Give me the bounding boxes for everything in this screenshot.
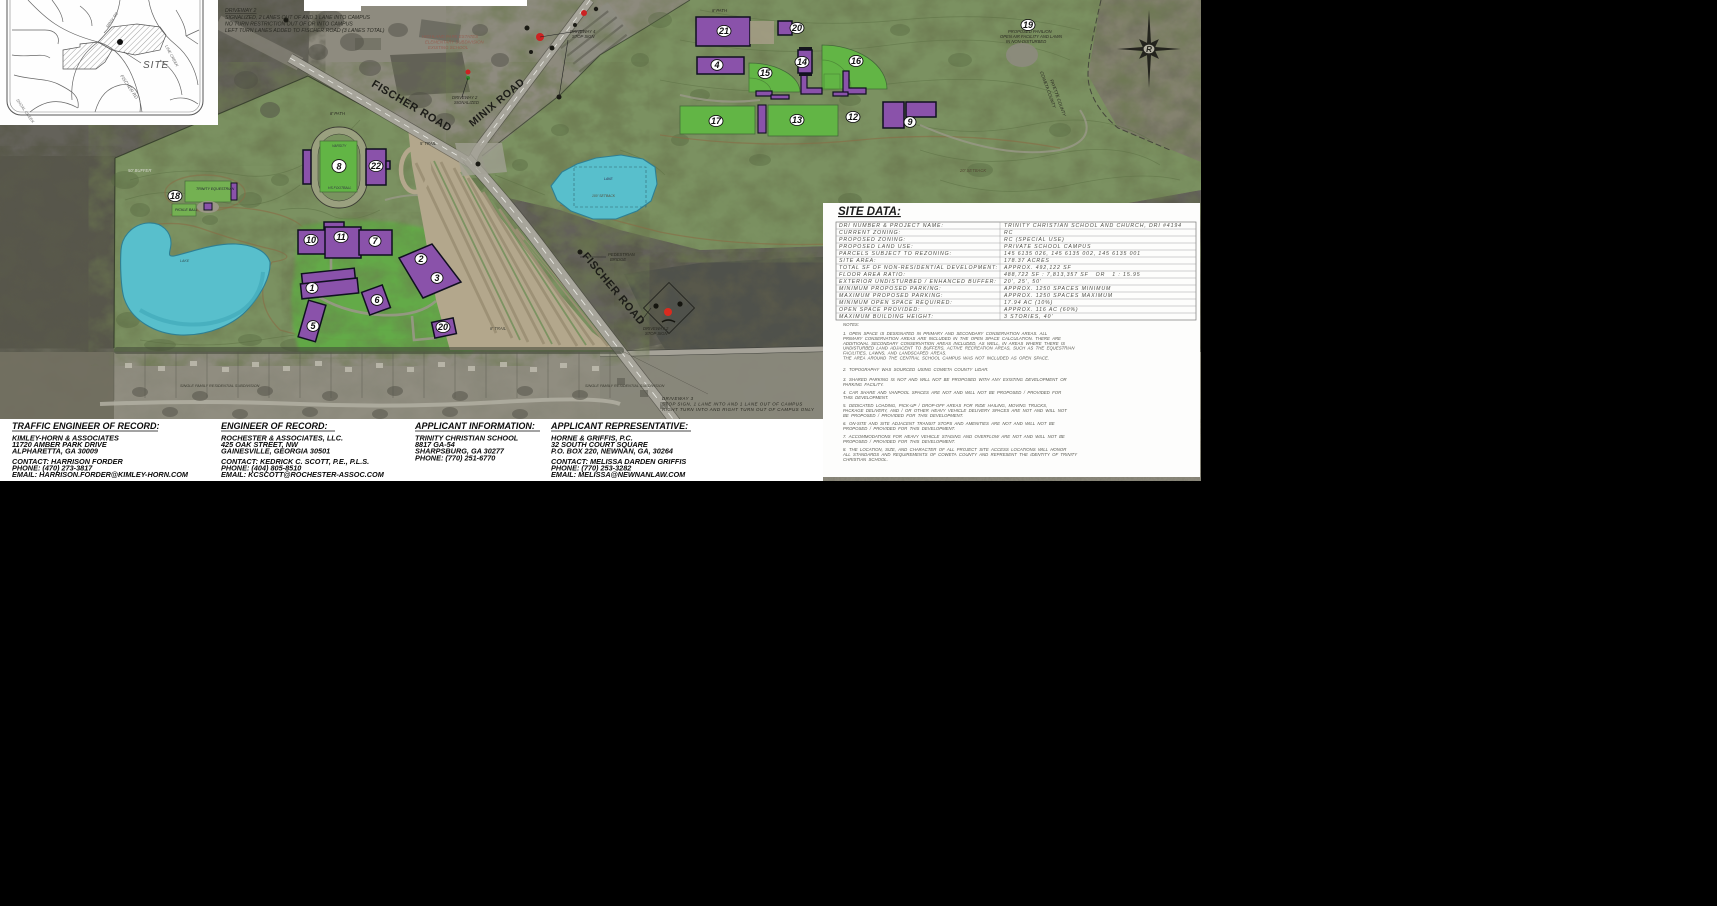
svg-text:APPROX. 116 AC (60%): APPROX. 116 AC (60%) [1003,307,1079,313]
svg-text:20' SETBACK: 20' SETBACK [959,168,986,173]
svg-text:APPROX. 1250 SPACES MAXIMUM: APPROX. 1250 SPACES MAXIMUM [1003,293,1113,299]
svg-text:8: 8 [336,162,341,172]
svg-text:15: 15 [760,68,771,78]
svg-text:3 STORIES, 40': 3 STORIES, 40' [1004,314,1053,320]
svg-text:P.O. BOX 220, NEWNAN, GA, 3026: P.O. BOX 220, NEWNAN, GA, 30264 [551,447,673,456]
svg-text:8' PATH: 8' PATH [712,8,728,13]
svg-text:PROPOSED LAND USE:: PROPOSED LAND USE: [839,244,913,250]
svg-text:TOTAL SF OF NON-RESIDENTIAL DE: TOTAL SF OF NON-RESIDENTIAL DEVELOPMENT: [839,265,998,271]
svg-text:EXISTING SCHOOL: EXISTING SCHOOL [428,45,469,50]
svg-text:MAXIMUM PROPOSED PARKING:: MAXIMUM PROPOSED PARKING: [839,293,943,299]
svg-text:18: 18 [170,191,180,201]
svg-text:SIGNALIZED, 2 LANES OUT OF AND: SIGNALIZED, 2 LANES OUT OF AND 1 LANE IN… [225,15,370,21]
svg-text:100' SETBACK: 100' SETBACK [592,194,616,198]
svg-text:20: 20 [437,322,448,332]
svg-text:PRIVATE SCHOOL CAMPUS: PRIVATE SCHOOL CAMPUS [1004,244,1091,250]
svg-text:SITE DATA:: SITE DATA: [838,206,901,218]
svg-text:LEFT TURN LANES ADDED TO FISCH: LEFT TURN LANES ADDED TO FISCHER ROAD (3… [225,28,385,34]
svg-text:11: 11 [336,232,345,242]
svg-text:DRIVEWAY 3: DRIVEWAY 3 [662,396,694,401]
svg-text:STOP SIGN: STOP SIGN [572,34,596,39]
svg-text:OPEN SPACE PROVIDED:: OPEN SPACE PROVIDED: [839,307,920,313]
svg-text:RIGHT TURN INTO AND RIGHT TURN: RIGHT TURN INTO AND RIGHT TURN OUT OF CA… [662,407,815,412]
svg-text:1: 1 [309,283,314,293]
svg-text:13: 13 [792,115,802,125]
svg-text:ELEMENTARY SUBDIVISION: ELEMENTARY SUBDIVISION [425,40,485,45]
svg-text:PROPOSED / PROVIDED FOR TH: PROPOSED / PROVIDED FOR THIS DEVELOPMENT… [843,426,955,431]
svg-text:TRAFFIC ENGINEER OF RECORD:: TRAFFIC ENGINEER OF RECORD: [12,421,160,431]
svg-text:5' TRAIL: 5' TRAIL [420,141,437,146]
svg-text:3: 3 [434,273,439,283]
svg-text:PHONE: (770) 251-6770: PHONE: (770) 251-6770 [415,453,495,462]
svg-text:TRINITY EQUESTRIAN: TRINITY EQUESTRIAN [196,187,235,191]
svg-text:DRI NUMBER & PROJECT NAME:: DRI NUMBER & PROJECT NAME: [839,223,944,229]
svg-text:TRINITY CHRISTIAN SCHOOL AND C: TRINITY CHRISTIAN SCHOOL AND CHURCH, DRI… [1004,223,1182,229]
svg-text:IN NON-DISTURBED: IN NON-DISTURBED [1006,39,1046,44]
svg-text:MINIMUM PROPOSED PARKING:: MINIMUM PROPOSED PARKING: [839,286,942,292]
svg-text:HIGHLAND PARK ESTATES: HIGHLAND PARK ESTATES [422,34,478,39]
svg-text:PARKING FACILITY.: PARKING FACILITY. [843,382,884,387]
svg-text:17.94 AC (10%): 17.94 AC (10%) [1004,300,1053,306]
svg-text:PICKLE BALL: PICKLE BALL [175,208,198,212]
svg-text:NOTES:: NOTES: [843,322,860,327]
svg-text:BE PROPOSED / PROVIDED FOR: BE PROPOSED / PROVIDED FOR THIS DEVELOPM… [843,413,963,418]
svg-text:PROPOSED / PROVIDED FOR TH: PROPOSED / PROVIDED FOR THIS DEVELOPMENT… [843,439,955,444]
svg-text:NO TURN RESTRICTION OUT OF OR: NO TURN RESTRICTION OUT OF OR INTO CAMPU… [225,22,353,28]
svg-text:145 6135 026, 145 6135 002, 14: 145 6135 026, 145 6135 002, 145 6135 001 [1004,251,1141,257]
svg-text:EXTERIOR UNDISTURBED / ENHANCE: EXTERIOR UNDISTURBED / ENHANCED BUFFER: [839,279,997,285]
svg-text:SITE: SITE [143,60,169,71]
svg-text:R: R [1146,45,1152,54]
svg-text:DRIVEWAY 2: DRIVEWAY 2 [225,8,257,14]
svg-text:VARSITY: VARSITY [332,144,347,148]
svg-text:17: 17 [711,116,722,126]
svg-text:16: 16 [851,56,862,66]
svg-text:8' TRAIL: 8' TRAIL [490,326,507,331]
svg-text:CURRENT ZONING:: CURRENT ZONING: [839,230,901,236]
svg-text:RC (SPECIAL USE): RC (SPECIAL USE) [1004,237,1065,243]
svg-text:THE AREA AROUND THE CENTRA: THE AREA AROUND THE CENTRAL SCHOOL CAMPU… [843,356,1049,361]
svg-text:SINGLE FAMILY RESIDENTIAL SUBD: SINGLE FAMILY RESIDENTIAL SUBDIVISION [180,384,260,388]
svg-text:STOP SIGN, 1 LANE INTO AND 1 L: STOP SIGN, 1 LANE INTO AND 1 LANE OUT OF… [662,402,803,407]
svg-text:PARCELS SUBJECT TO REZONING:: PARCELS SUBJECT TO REZONING: [839,251,952,257]
svg-text:2. TOPOGRAPHY WAS SOURCED: 2. TOPOGRAPHY WAS SOURCED USING COWETA C… [842,367,989,372]
svg-text:488,722 SF : 7,813,357 SF OR: 488,722 SF : 7,813,357 SF OR 1 : 15.95 [1004,272,1141,278]
svg-text:APPROX. 492,122 SF: APPROX. 492,122 SF [1003,265,1072,271]
svg-text:SIGNALIZED: SIGNALIZED [454,100,479,105]
svg-text:SITE AREA:: SITE AREA: [839,258,876,264]
svg-text:MAXIMUM BUILDING HEIGHT:: MAXIMUM BUILDING HEIGHT: [839,314,934,320]
svg-text:FLOOR AREA RATIO:: FLOOR AREA RATIO: [839,272,906,278]
svg-text:GAINESVILLE, GEORGIA 30501: GAINESVILLE, GEORGIA 30501 [221,447,330,456]
svg-text:EMAIL: HARRISON.FORDER@KIMLEY-: EMAIL: HARRISON.FORDER@KIMLEY-HORN.COM [12,470,189,479]
svg-text:STOP SIGN: STOP SIGN [645,331,669,336]
svg-text:BRIDGE: BRIDGE [610,257,626,262]
svg-text:8' PATH: 8' PATH [330,111,346,116]
svg-text:LAKE: LAKE [180,259,190,263]
svg-text:178.37 ACRES: 178.37 ACRES [1004,258,1050,264]
svg-text:14: 14 [797,57,807,67]
svg-text:APPROX. 1250 SPACES MINIMUM: APPROX. 1250 SPACES MINIMUM [1003,286,1111,292]
svg-text:RC: RC [1004,230,1013,236]
svg-text:APPLICANT INFORMATION:: APPLICANT INFORMATION: [414,421,535,431]
svg-text:APPLICANT REPRESENTATIVE:: APPLICANT REPRESENTATIVE: [550,421,688,431]
svg-text:20: 20 [791,23,802,33]
svg-text:MINIMUM OPEN SPACE REQUIRED:: MINIMUM OPEN SPACE REQUIRED: [839,300,953,306]
svg-text:EMAIL: MELISSA@NEWNANLAW.COM: EMAIL: MELISSA@NEWNANLAW.COM [551,470,686,479]
svg-text:9: 9 [907,117,912,127]
svg-text:THIS DEVELOPMENT.: THIS DEVELOPMENT. [843,395,888,400]
svg-text:10: 10 [306,235,316,245]
svg-text:CHRISTIAN SCHOOL.: CHRISTIAN SCHOOL. [843,457,888,462]
svg-text:2: 2 [417,254,423,264]
svg-text:PROPOSED ZONING:: PROPOSED ZONING: [839,237,906,243]
svg-text:LAKE: LAKE [604,177,613,181]
svg-text:21: 21 [718,26,729,36]
svg-text:HS FOOTBALL: HS FOOTBALL [328,186,351,190]
svg-text:20', 25', 50': 20', 25', 50' [1003,279,1042,285]
svg-text:12: 12 [848,112,858,122]
svg-text:50' BUFFER: 50' BUFFER [128,168,151,173]
svg-text:22: 22 [370,161,381,171]
svg-text:EMAIL: KCSCOTT@ROCHESTER-ASSOC: EMAIL: KCSCOTT@ROCHESTER-ASSOC.COM [221,470,385,479]
svg-text:ENGINEER OF RECORD:: ENGINEER OF RECORD: [221,421,328,431]
svg-text:ALPHARETTA, GA 30009: ALPHARETTA, GA 30009 [11,447,99,456]
svg-text:4: 4 [713,60,719,70]
